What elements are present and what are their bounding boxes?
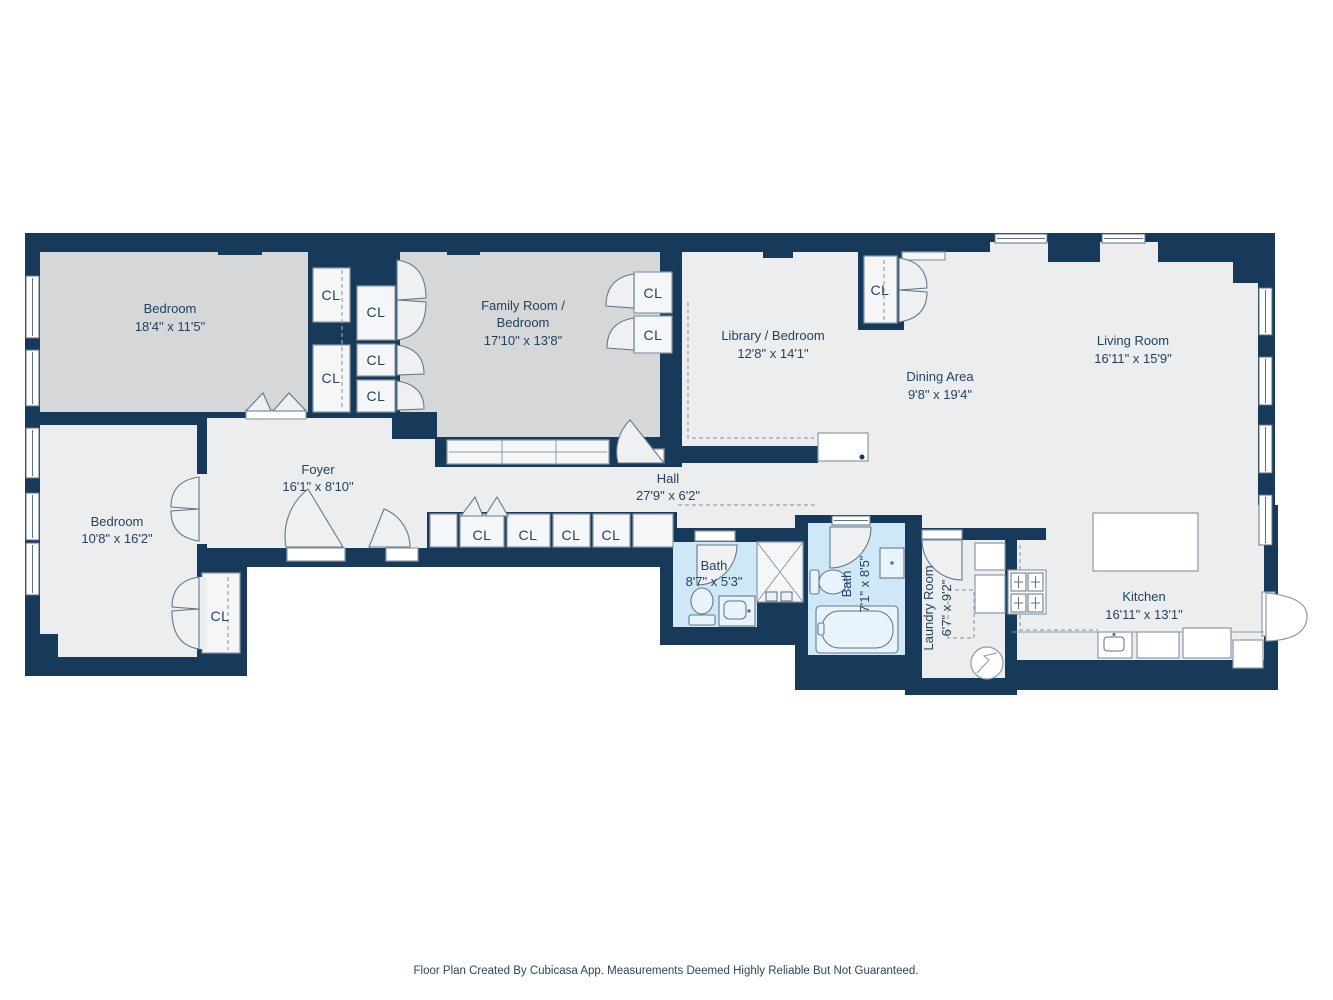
toilet-bath-large	[810, 570, 819, 594]
room-dims: 18'4" x 11'5"	[135, 319, 206, 334]
room-label: Foyer	[301, 462, 335, 477]
room-dims: 6'7" x 9'2"	[939, 579, 954, 636]
closet-label: CL	[322, 287, 341, 303]
washer	[971, 647, 1003, 679]
closet-label: CL	[367, 352, 386, 368]
closet-label: CL	[644, 285, 663, 301]
room-label: Bedroom	[497, 315, 550, 330]
room-dims: 9'8" x 19'4"	[908, 387, 972, 402]
closet-label: CL	[367, 388, 386, 404]
room-dims: 8'7" x 5'3"	[686, 574, 743, 589]
footer-disclaimer: Floor Plan Created By Cubicasa App. Meas…	[414, 965, 919, 977]
room-label: Library / Bedroom	[721, 328, 824, 343]
room-label: Bath	[701, 558, 728, 573]
room-label: Bath	[839, 571, 854, 598]
room-dims: 16'11" x 15'9"	[1094, 351, 1172, 366]
room-dims: 27'9" x 6'2"	[636, 488, 700, 503]
room-dims: 10'8" x 16'2"	[81, 531, 153, 546]
room-dims: 16'11" x 13'1"	[1105, 607, 1183, 622]
room-dims: 16'1" x 8'10"	[282, 479, 354, 494]
closet-label: CL	[211, 608, 230, 624]
closet-label: CL	[473, 527, 492, 543]
floor-plan-page: Bedroom 18'4" x 11'5" Family Room / Bedr…	[0, 0, 1333, 1000]
kitchen-island	[1093, 513, 1198, 571]
closet-label: CL	[367, 304, 386, 320]
kitchen-sink	[1098, 632, 1132, 658]
dishwasher	[1183, 628, 1231, 658]
closet-label: CL	[602, 527, 621, 543]
closet-label: CL	[519, 527, 538, 543]
closet-label: CL	[322, 370, 341, 386]
room-label: Bedroom	[144, 301, 197, 316]
stove	[1008, 570, 1046, 614]
room-label: Dining Area	[906, 369, 974, 384]
room-dims: 7'1" x 8'5"	[857, 555, 872, 612]
room-label: Bedroom	[91, 514, 144, 529]
closet-label: CL	[871, 282, 890, 298]
room-label: Laundry Room	[921, 565, 936, 650]
closet-label: CL	[562, 527, 581, 543]
toilet-bath-small	[691, 588, 713, 614]
room-label: Kitchen	[1122, 589, 1165, 604]
room-label: Hall	[657, 471, 680, 486]
kitchen-exterior-door	[1266, 593, 1307, 641]
room-label: Family Room /	[481, 298, 565, 313]
floor-plan-svg: Bedroom 18'4" x 11'5" Family Room / Bedr…	[0, 0, 1333, 1000]
room-dims: 17'10" x 13'8"	[484, 333, 563, 348]
closet-label: CL	[644, 327, 663, 343]
room-dims: 12'8" x 14'1"	[737, 346, 809, 361]
laundry-counter	[975, 543, 1005, 570]
room-label: Living Room	[1097, 333, 1169, 348]
